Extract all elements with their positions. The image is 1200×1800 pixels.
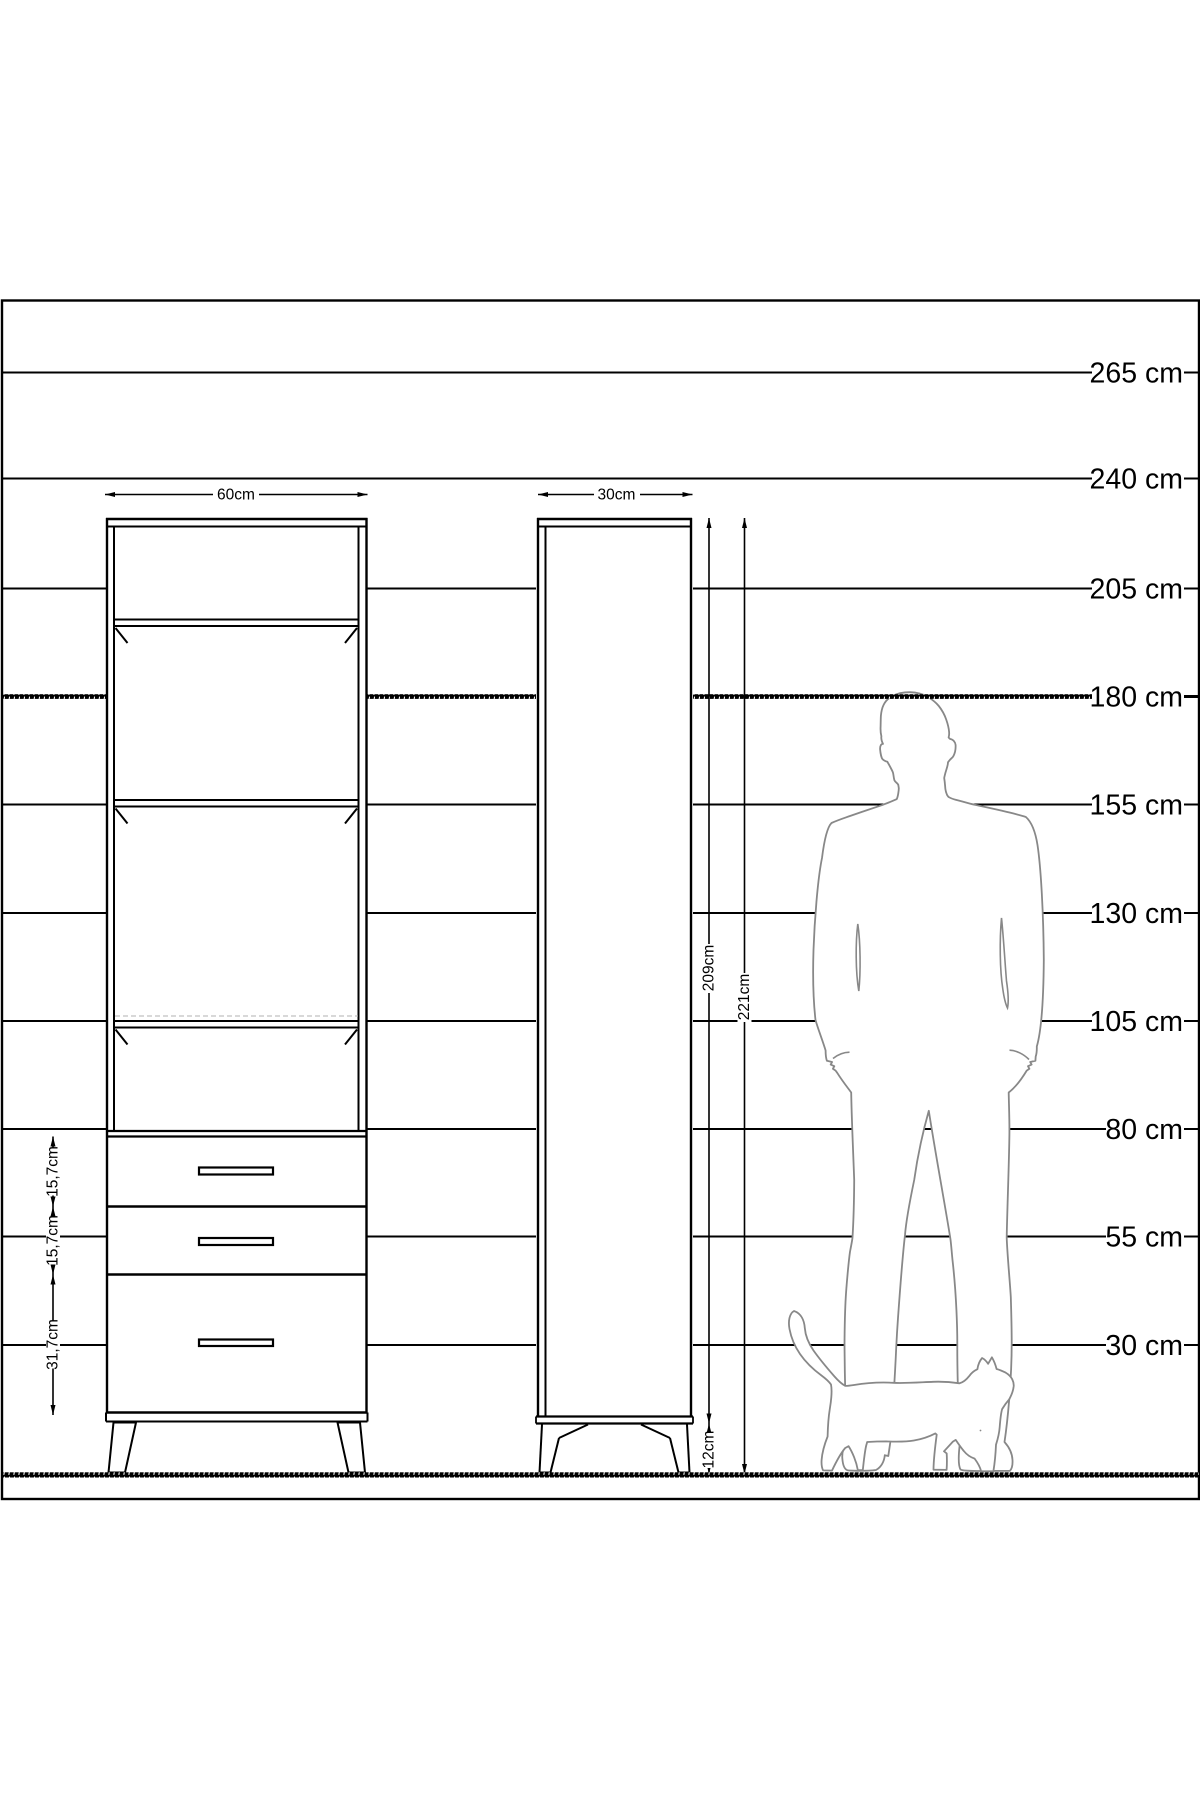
svg-text:265 cm: 265 cm <box>1090 358 1183 390</box>
svg-text:15,7cm: 15,7cm <box>45 1215 62 1266</box>
svg-text:155 cm: 155 cm <box>1090 790 1183 822</box>
svg-text:30cm: 30cm <box>598 487 636 504</box>
svg-text:180 cm: 180 cm <box>1090 682 1183 714</box>
svg-text:221cm: 221cm <box>736 974 753 1021</box>
svg-text:30 cm: 30 cm <box>1105 1330 1183 1362</box>
svg-text:12cm: 12cm <box>701 1431 718 1469</box>
svg-text:31,7cm: 31,7cm <box>45 1319 62 1370</box>
svg-text:80 cm: 80 cm <box>1105 1114 1183 1146</box>
svg-text:240 cm: 240 cm <box>1090 464 1183 496</box>
svg-text:209cm: 209cm <box>701 945 718 992</box>
svg-text:15,7cm: 15,7cm <box>45 1146 62 1197</box>
svg-text:60cm: 60cm <box>217 487 255 504</box>
svg-text:205 cm: 205 cm <box>1090 574 1183 606</box>
svg-text:130 cm: 130 cm <box>1090 898 1183 930</box>
svg-text:105 cm: 105 cm <box>1090 1006 1183 1038</box>
svg-text:55 cm: 55 cm <box>1105 1222 1183 1254</box>
